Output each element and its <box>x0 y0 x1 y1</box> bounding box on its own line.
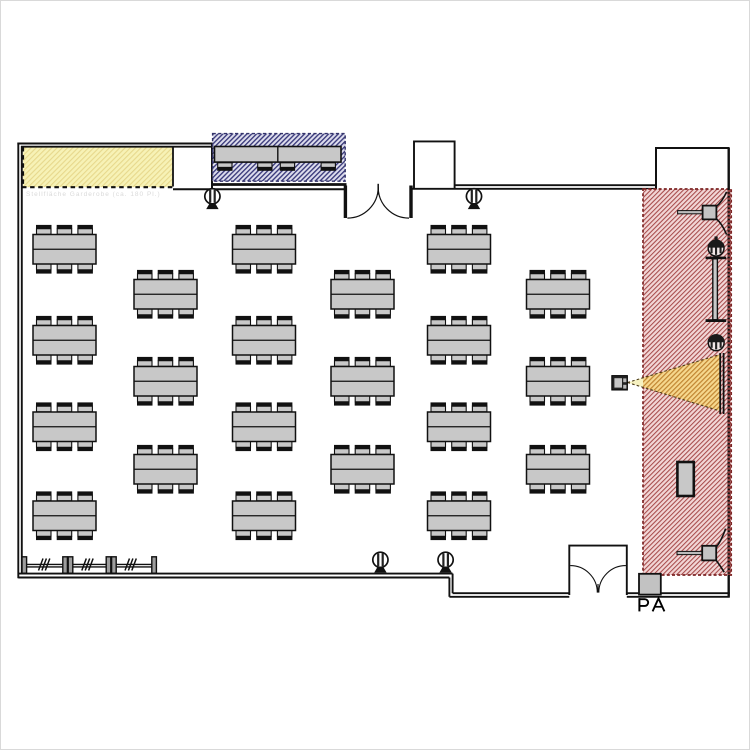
svg-text:Stellfläche Garderobe (ca. 180: Stellfläche Garderobe (ca. 180 Pl.) <box>26 191 161 198</box>
